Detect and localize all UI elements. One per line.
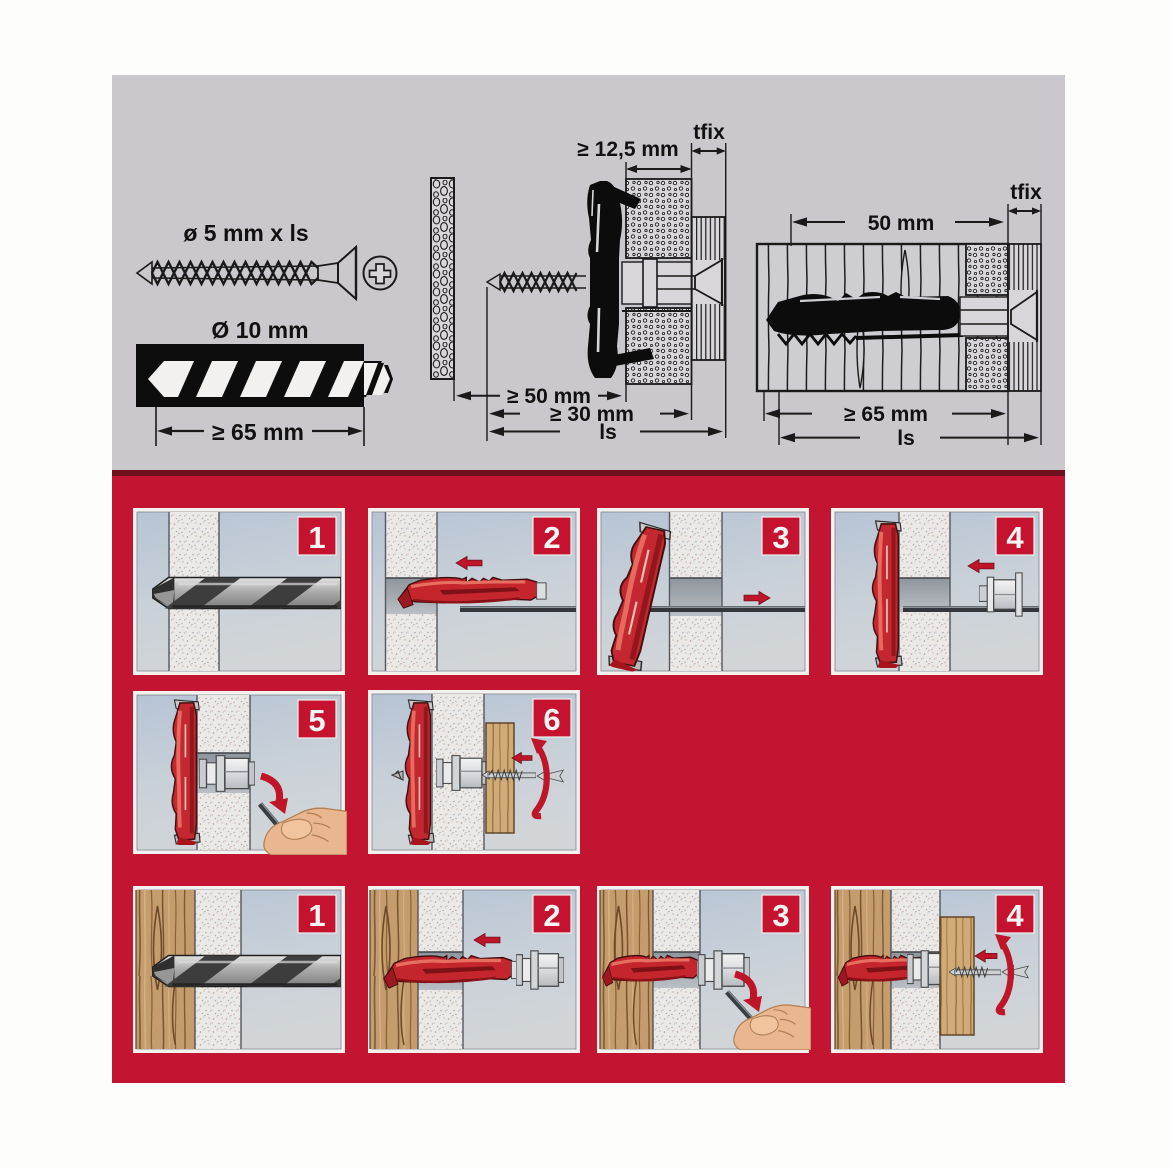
svg-text:6: 6 xyxy=(543,702,560,737)
svg-text:3: 3 xyxy=(772,898,789,933)
svg-text:ls: ls xyxy=(599,421,617,444)
svg-text:5: 5 xyxy=(308,703,325,738)
svg-text:ls: ls xyxy=(897,427,915,450)
svg-text:≥ 65 mm: ≥ 65 mm xyxy=(844,403,928,426)
svg-text:ø 5 mm x ls: ø 5 mm x ls xyxy=(183,220,308,246)
svg-text:2: 2 xyxy=(543,898,560,933)
svg-text:tfix: tfix xyxy=(1010,181,1042,204)
svg-text:4: 4 xyxy=(1006,898,1024,933)
svg-text:tfix: tfix xyxy=(693,121,725,144)
svg-text:≥ 65 mm: ≥ 65 mm xyxy=(212,419,304,445)
svg-text:≥ 12,5 mm: ≥ 12,5 mm xyxy=(577,138,678,161)
svg-text:≥ 30 mm: ≥ 30 mm xyxy=(550,403,634,426)
svg-text:4: 4 xyxy=(1006,520,1024,555)
svg-text:1: 1 xyxy=(308,898,325,933)
svg-text:1: 1 xyxy=(308,520,325,555)
svg-text:50 mm: 50 mm xyxy=(868,212,935,235)
svg-text:3: 3 xyxy=(772,520,789,555)
svg-text:Ø 10 mm: Ø 10 mm xyxy=(211,317,308,343)
svg-text:2: 2 xyxy=(543,520,560,555)
